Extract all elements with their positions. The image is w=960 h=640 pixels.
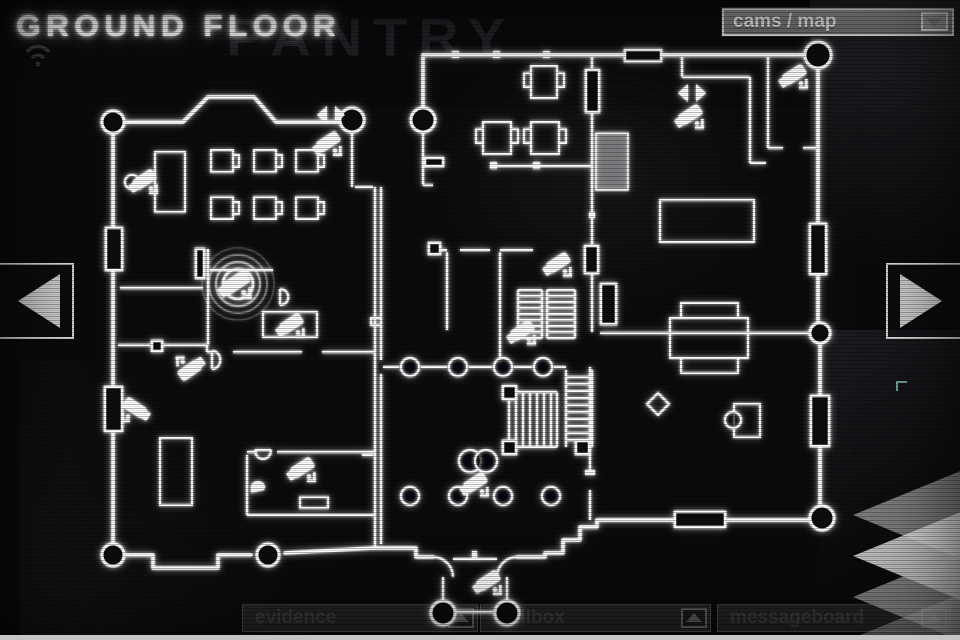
next-floor-button[interactable] [886,263,960,339]
tab-evidence-label: evidence [255,607,336,629]
background-streak [20,360,360,640]
left-triangle-icon [18,274,60,328]
view-mode-label: cams / map [733,11,837,33]
signal-arcs-icon [27,47,49,67]
up-triangle-icon [686,613,702,622]
page-title: GROUND FLOOR [16,10,341,44]
mailbox-expand-button[interactable] [681,608,707,628]
background-shelf-photo-lower [820,330,960,640]
up-triangle-icon [453,613,469,622]
messageboard-expand-button[interactable] [921,608,947,628]
tab-mailbox[interactable]: mailbox [480,604,711,632]
chevron-down-icon [926,18,942,27]
right-triangle-icon [900,274,942,328]
up-triangle-icon [926,613,942,622]
tab-messageboard-label: messageboard [730,607,864,629]
prev-floor-button[interactable] [0,263,74,339]
view-mode-dropdown[interactable]: cams / map [722,8,954,36]
tab-mailbox-label: mailbox [493,607,565,629]
tab-evidence[interactable]: evidence [242,604,478,632]
tab-messageboard[interactable]: messageboard [717,604,951,632]
evidence-expand-button[interactable] [448,608,474,628]
dropdown-open-button[interactable] [921,12,948,31]
bottom-strip [0,635,960,640]
background-glow [420,40,780,320]
